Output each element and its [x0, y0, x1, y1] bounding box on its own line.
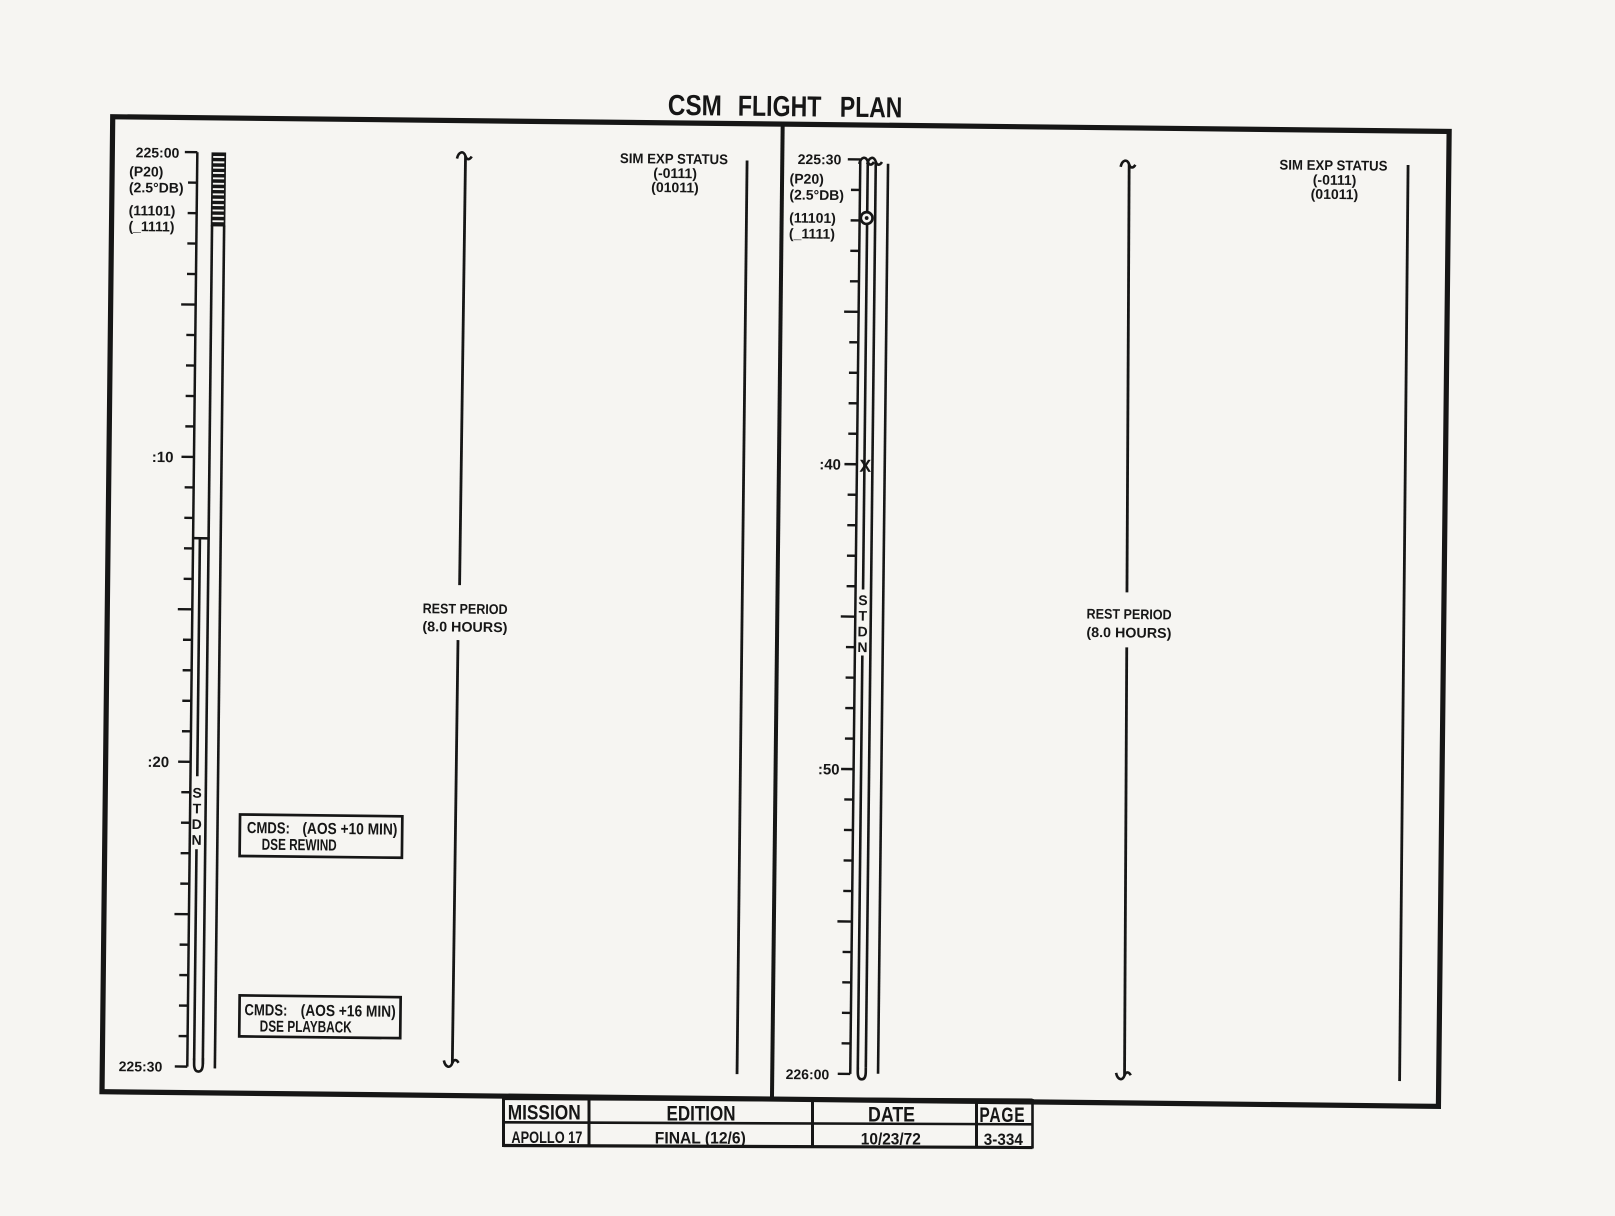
svg-text:DSE REWIND: DSE REWIND — [262, 837, 337, 855]
svg-text:PAGE: PAGE — [979, 1104, 1025, 1127]
svg-text:225:00: 225:00 — [136, 144, 180, 160]
svg-text:225:30: 225:30 — [119, 1058, 163, 1074]
svg-text:REST PERIOD: REST PERIOD — [423, 600, 508, 617]
svg-text:CMDS:: CMDS: — [247, 820, 290, 837]
svg-text:N: N — [857, 639, 867, 655]
svg-text:S: S — [858, 592, 868, 608]
svg-text:225:30: 225:30 — [798, 151, 842, 167]
svg-text:(P20): (P20) — [789, 170, 823, 186]
svg-text:(AOS +10 MIN): (AOS +10 MIN) — [302, 821, 397, 839]
svg-text:N: N — [191, 832, 201, 848]
svg-text:(AOS +16 MIN): (AOS +16 MIN) — [301, 1003, 396, 1021]
svg-text:(2.5°DB): (2.5°DB) — [129, 179, 184, 196]
svg-text:(11101): (11101) — [129, 202, 176, 219]
svg-text:EDITION: EDITION — [667, 1103, 736, 1126]
svg-text:DSE PLAYBACK: DSE PLAYBACK — [260, 1019, 353, 1037]
svg-text:226:00: 226:00 — [786, 1066, 830, 1082]
svg-text:CMDS:: CMDS: — [244, 1002, 287, 1019]
svg-text:10/23/72: 10/23/72 — [861, 1129, 921, 1148]
svg-text:CSM: CSM — [668, 90, 722, 123]
svg-text:T: T — [858, 608, 867, 624]
svg-text:(8.0 HOURS): (8.0 HOURS) — [1086, 624, 1171, 641]
svg-text::10: :10 — [152, 449, 174, 466]
svg-text::40: :40 — [819, 456, 841, 473]
svg-text:3-334: 3-334 — [984, 1130, 1023, 1149]
svg-text:DATE: DATE — [868, 1103, 915, 1126]
svg-text:REST PERIOD: REST PERIOD — [1087, 605, 1172, 622]
svg-text::50: :50 — [818, 761, 840, 778]
svg-text:APOLLO 17: APOLLO 17 — [511, 1128, 582, 1147]
svg-text:(01011): (01011) — [1311, 186, 1359, 203]
svg-text:(11101): (11101) — [789, 209, 836, 226]
svg-text:(_1111): (_1111) — [128, 218, 174, 235]
svg-text:PLAN: PLAN — [840, 92, 903, 125]
svg-text:X: X — [859, 456, 871, 476]
svg-text:FLIGHT: FLIGHT — [738, 91, 822, 124]
svg-text:S: S — [192, 785, 202, 801]
svg-text:MISSION: MISSION — [508, 1102, 581, 1125]
svg-text:(01011): (01011) — [651, 179, 699, 196]
svg-text:D: D — [192, 816, 202, 832]
svg-text:D: D — [857, 623, 867, 639]
svg-text:FINAL (12/6): FINAL (12/6) — [655, 1129, 746, 1148]
svg-text:T: T — [193, 800, 202, 816]
svg-text:(2.5°DB): (2.5°DB) — [789, 186, 844, 203]
svg-text:(P20): (P20) — [129, 163, 163, 179]
svg-text:(8.0 HOURS): (8.0 HOURS) — [422, 618, 507, 635]
svg-text:(_1111): (_1111) — [789, 225, 835, 242]
svg-text::20: :20 — [147, 754, 169, 771]
